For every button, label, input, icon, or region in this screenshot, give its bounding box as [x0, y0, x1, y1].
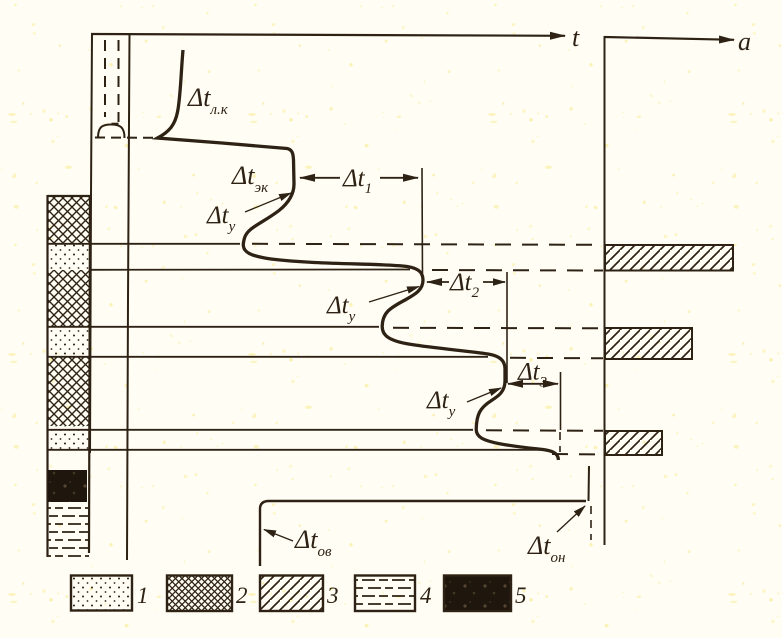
- svg-text:4: 4: [420, 583, 432, 608]
- svg-text:a: a: [738, 27, 751, 56]
- svg-text:1: 1: [137, 583, 149, 608]
- svg-text:5: 5: [515, 583, 527, 608]
- svg-text:3: 3: [326, 583, 339, 608]
- svg-text:2: 2: [236, 583, 248, 608]
- svg-text:t: t: [572, 23, 580, 52]
